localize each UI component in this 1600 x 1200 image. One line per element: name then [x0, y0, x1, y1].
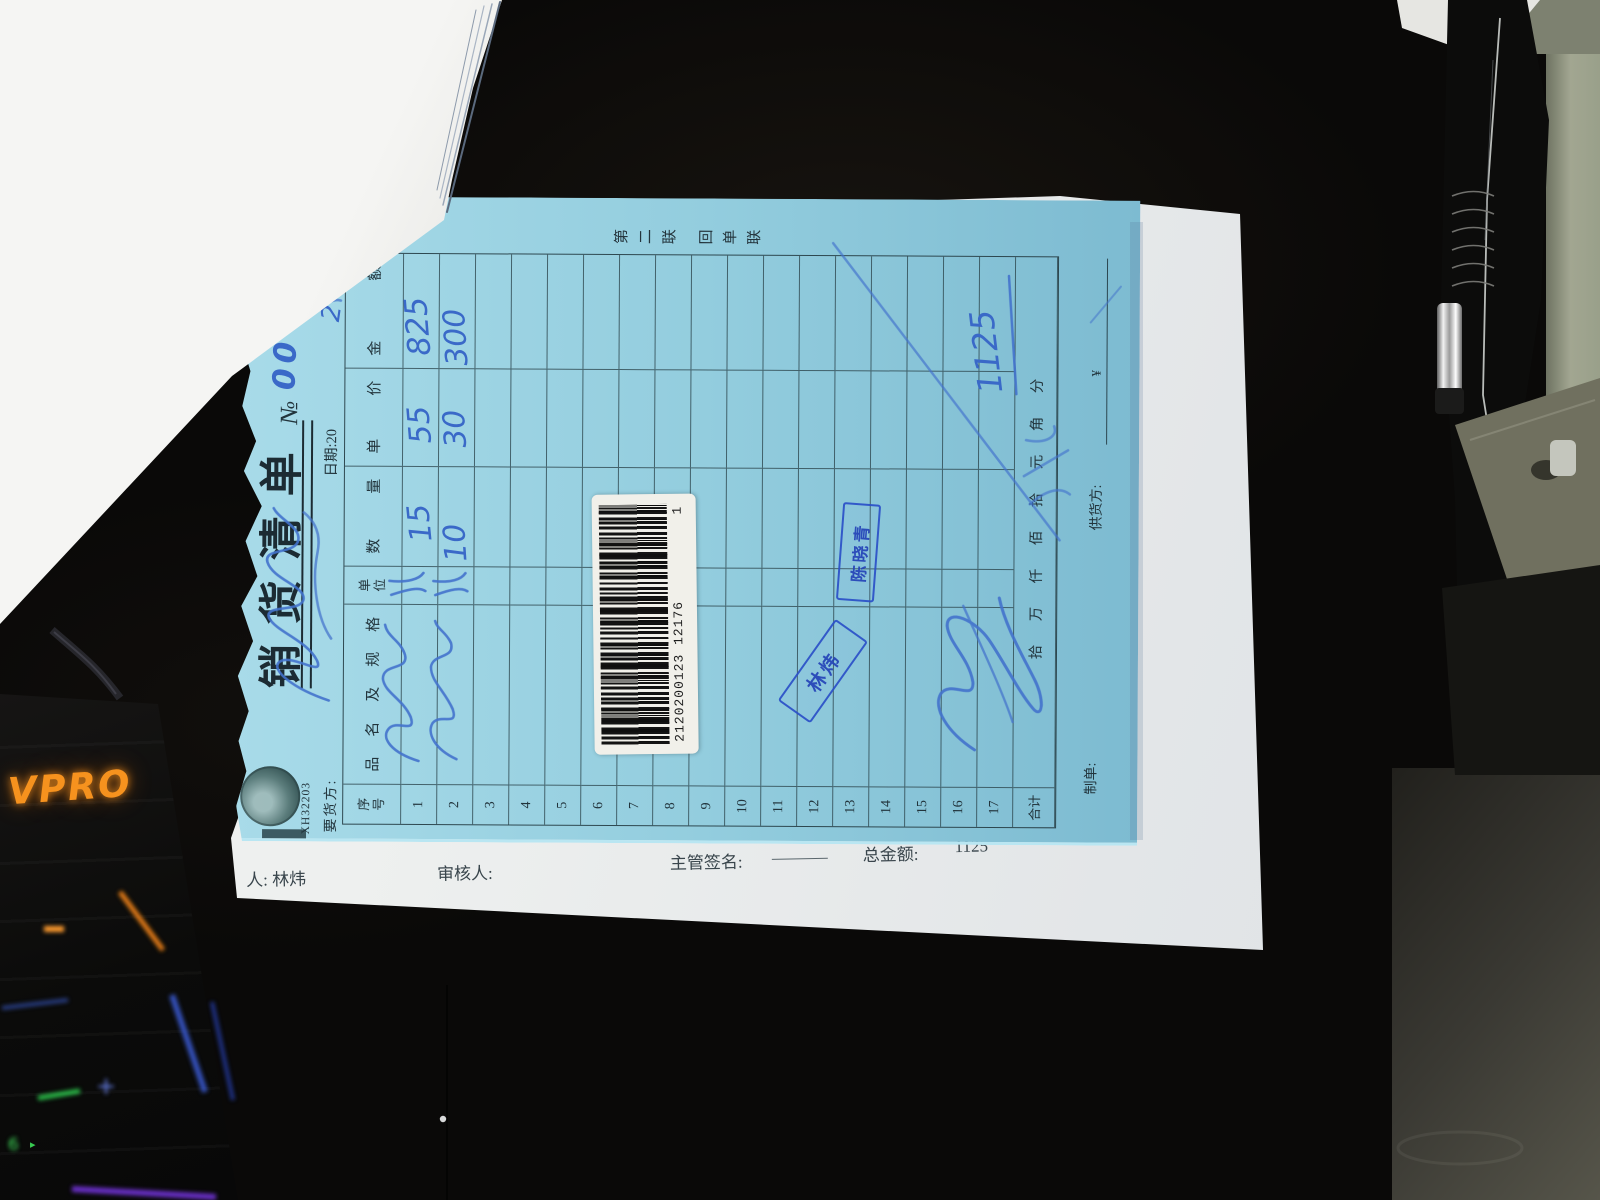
invoice-footer-line: 制单: 供货方: ¥	[232, 193, 1140, 843]
handler-label: 人: 林炜	[246, 865, 306, 891]
currency-symbol: ¥	[1088, 370, 1104, 377]
desk-seam-line	[446, 985, 448, 1200]
keyboard-brand-logo: VPRO	[7, 762, 133, 814]
supplier-label: 供货方:	[1086, 485, 1106, 531]
reviewer-label: 审核人:	[437, 859, 493, 885]
maker-label: 制单:	[1080, 763, 1100, 795]
side-ledge	[1546, 50, 1600, 774]
desk-lower-right	[1392, 768, 1600, 1200]
manager-sign-label: 主管签名:	[670, 848, 743, 875]
side-ledge-top	[1518, 0, 1600, 54]
sales-invoice-sheet: ® 销货清单 № XH32203 要货方: 日期:20 年 月 第二联 回单联 …	[232, 191, 1143, 846]
